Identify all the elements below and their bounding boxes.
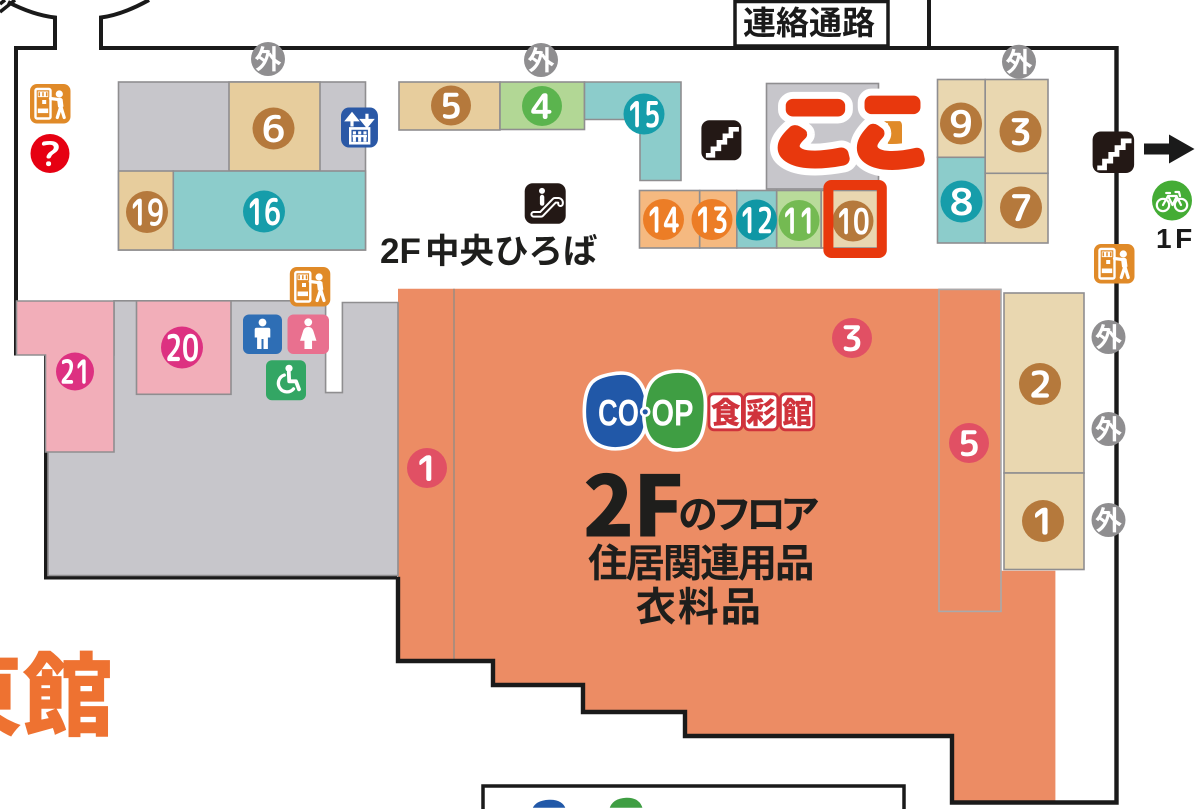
- svg-text:OP: OP: [652, 393, 694, 434]
- svg-text:1F: 1F: [1156, 223, 1196, 254]
- svg-text:CO: CO: [598, 393, 639, 434]
- svg-text:2F: 2F: [380, 232, 421, 271]
